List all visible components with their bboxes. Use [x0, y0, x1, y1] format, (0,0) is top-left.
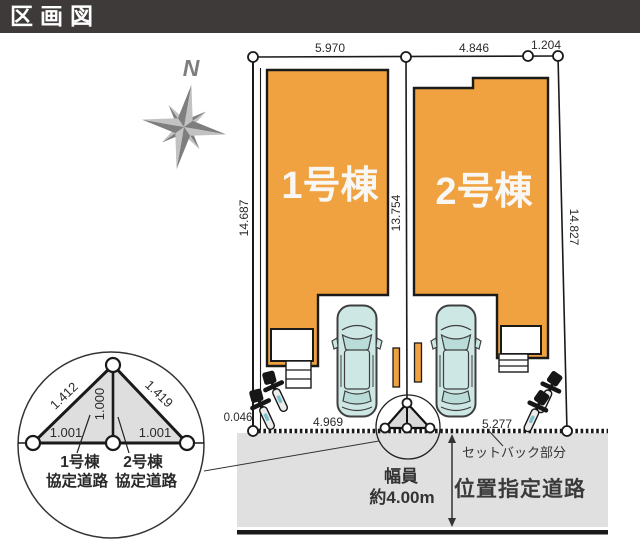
building-1-porch — [271, 329, 313, 361]
detail-left-label-1: 1号棟 — [60, 452, 100, 471]
detail-base-left: 1.001 — [50, 425, 83, 440]
building-2-footprint — [414, 78, 548, 358]
detail-left-label-2: 協定道路 — [46, 471, 109, 490]
building-1-entry-steps — [286, 361, 311, 388]
setback-label: セットバック部分 — [462, 445, 566, 460]
plot-plan-page: 区画図 — [0, 0, 640, 547]
detail-height: 1.000 — [92, 388, 107, 421]
north-label: N — [183, 55, 200, 81]
road-width-label-1: 幅員 — [384, 466, 418, 486]
detail-right-label-2: 協定道路 — [115, 471, 178, 490]
fence-bar-right — [415, 343, 422, 382]
dim-right-side: 14.827 — [567, 209, 581, 246]
road-outer-edge — [237, 530, 608, 535]
building-1-label: 1号棟 — [281, 165, 379, 207]
building-2-label: 2号棟 — [435, 171, 533, 213]
building-2-entry-steps — [499, 354, 528, 372]
dim-left-side: 14.687 — [237, 199, 251, 236]
detail-right-label-1: 2号棟 — [123, 452, 163, 471]
dim-center-side: 13.754 — [389, 194, 403, 231]
fence-bar-left — [393, 348, 400, 387]
dim-bottom-left: 4.969 — [313, 415, 343, 429]
dim-top-3: 1.204 — [531, 38, 561, 52]
compass-rose-icon — [134, 77, 234, 177]
road-junction-detail-circle: 1.412 1.419 1.000 1.001 1.001 1号棟 協定道路 2… — [18, 352, 204, 538]
dim-bottom-right: 5.277 — [482, 417, 512, 431]
dim-top-2: 4.846 — [459, 41, 489, 55]
lot-center-boundary — [406, 57, 407, 403]
dim-bottom-offset: 0.046 — [224, 412, 253, 424]
car-icon-lot1 — [332, 306, 382, 417]
detail-base-right: 1.001 — [139, 425, 172, 440]
car-icon-lot2 — [431, 306, 481, 417]
site-plan-drawing: 1号棟 2号棟 5.970 4.846 1.204 14.687 13.754 … — [0, 0, 640, 547]
building-2-porch — [501, 326, 541, 354]
road-name-label: 位置指定道路 — [454, 477, 586, 501]
road-width-label-2: 約4.00m — [369, 487, 434, 507]
dim-top-1: 5.970 — [315, 41, 345, 55]
